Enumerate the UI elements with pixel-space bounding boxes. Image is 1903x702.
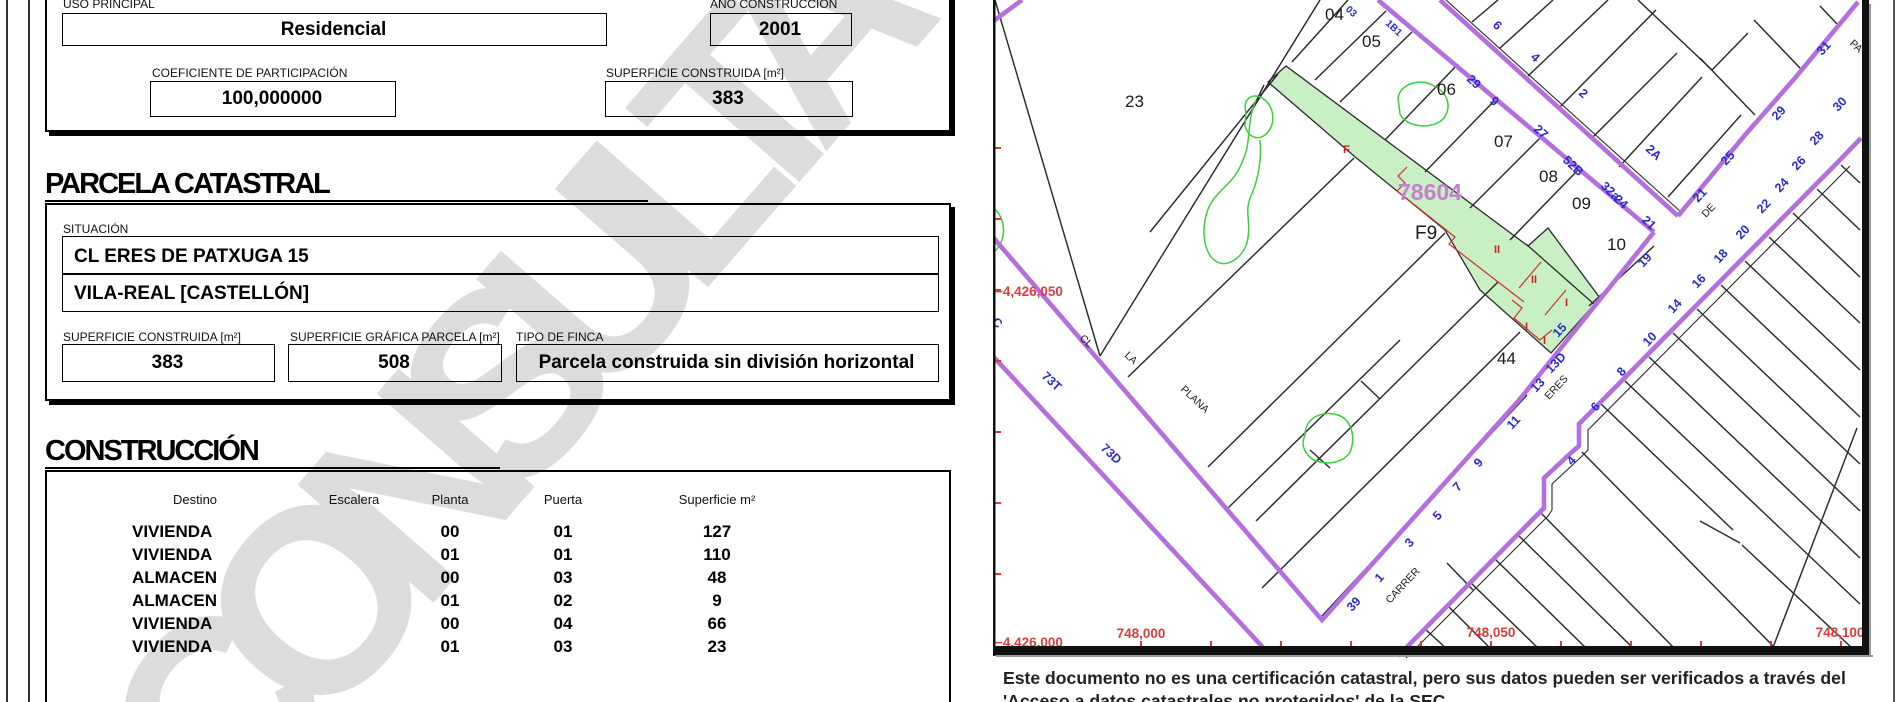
svg-text:10: 10	[1607, 235, 1626, 254]
svg-text:73T: 73T	[1039, 369, 1065, 394]
svg-text:ERES: ERES	[1542, 373, 1570, 402]
svg-text:II: II	[1531, 274, 1537, 286]
svg-text:04: 04	[1325, 5, 1344, 24]
svg-text:DE: DE	[1699, 201, 1718, 220]
svg-text:07: 07	[1494, 132, 1513, 151]
svg-text:1: 1	[1372, 570, 1387, 585]
svg-text:748,100: 748,100	[1816, 625, 1865, 640]
svg-text:PLANA: PLANA	[1178, 383, 1211, 415]
svg-text:28: 28	[1807, 128, 1827, 148]
svg-text:16: 16	[1689, 271, 1709, 291]
svg-text:2A: 2A	[1643, 142, 1664, 163]
svg-text:73D: 73D	[1098, 441, 1124, 467]
svg-text:78604: 78604	[1398, 179, 1462, 205]
svg-text:CARRER: CARRER	[1383, 565, 1422, 606]
svg-text:20: 20	[1733, 222, 1753, 242]
svg-text:09: 09	[1572, 194, 1591, 213]
svg-text:14: 14	[1665, 296, 1685, 316]
svg-text:F: F	[1343, 144, 1350, 156]
svg-text:21: 21	[1639, 213, 1659, 233]
svg-text:23: 23	[1125, 92, 1144, 111]
svg-text:05: 05	[1362, 32, 1381, 51]
svg-text:21: 21	[1690, 185, 1710, 205]
svg-text:748,050: 748,050	[1467, 625, 1516, 640]
svg-text:−4,426,050: −4,426,050	[995, 284, 1063, 299]
svg-text:30: 30	[1830, 94, 1850, 114]
svg-text:06: 06	[1437, 80, 1456, 99]
svg-text:6: 6	[1490, 18, 1505, 33]
svg-text:27: 27	[1531, 122, 1551, 142]
svg-text:18: 18	[1711, 246, 1731, 266]
svg-text:24: 24	[1772, 175, 1792, 195]
svg-text:44: 44	[1497, 349, 1516, 368]
svg-text:748,000: 748,000	[1117, 626, 1166, 641]
svg-text:03: 03	[1343, 4, 1359, 20]
svg-text:I: I	[1525, 321, 1528, 333]
svg-text:I: I	[1543, 335, 1546, 347]
svg-text:3: 3	[1402, 535, 1417, 550]
svg-text:26: 26	[1789, 153, 1809, 173]
svg-text:22: 22	[1754, 196, 1774, 216]
svg-text:LA: LA	[1122, 349, 1140, 367]
svg-text:9: 9	[1471, 455, 1486, 470]
svg-text:5: 5	[1430, 508, 1445, 523]
svg-text:I: I	[1565, 297, 1568, 309]
svg-text:4: 4	[1528, 50, 1543, 65]
svg-text:13D: 13D	[1543, 350, 1569, 376]
svg-text:08: 08	[1539, 167, 1558, 186]
svg-text:F9: F9	[1415, 223, 1437, 244]
svg-text:7: 7	[1450, 479, 1465, 494]
svg-text:II: II	[1494, 244, 1500, 256]
svg-text:39: 39	[1344, 594, 1364, 614]
